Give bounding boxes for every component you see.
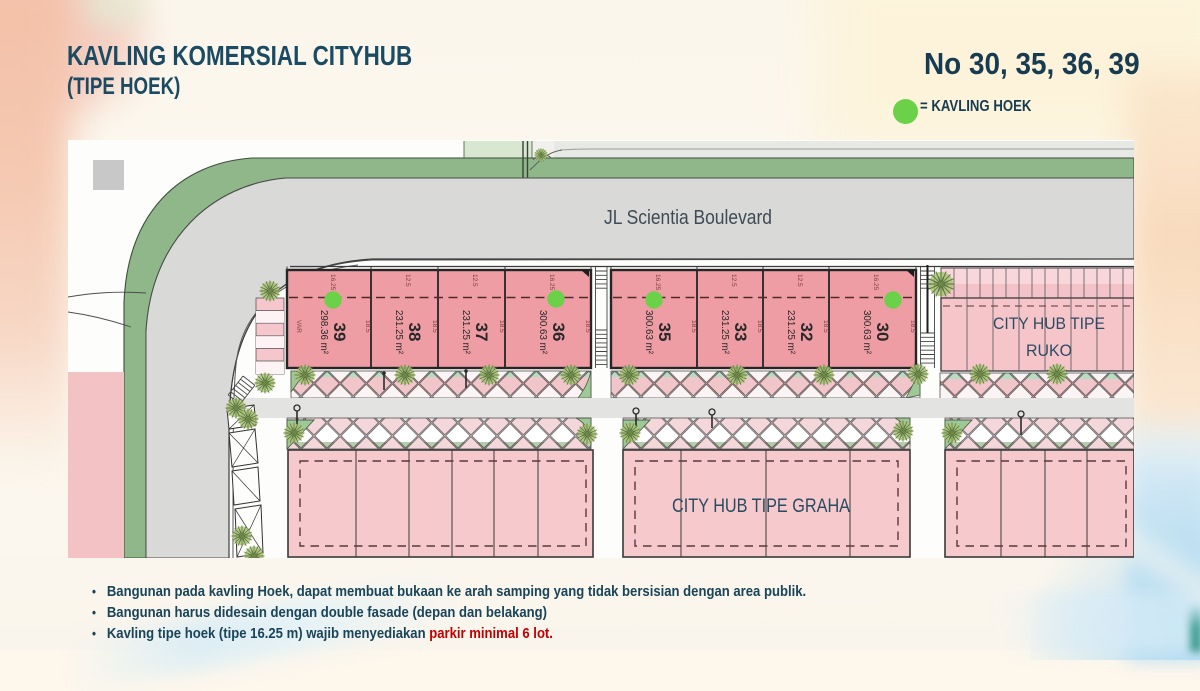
svg-text:JL Scientia Boulevard: JL Scientia Boulevard [604, 206, 772, 229]
svg-text:12.5: 12.5 [404, 274, 411, 287]
svg-text:18.5: 18.5 [498, 320, 505, 333]
svg-text:38: 38 [405, 323, 424, 342]
svg-text:231.25 m²: 231.25 m² [460, 310, 471, 355]
svg-text:CITY HUB TIPE GRAHA: CITY HUB TIPE GRAHA [672, 496, 850, 517]
svg-text:12.5: 12.5 [796, 274, 803, 287]
svg-text:36: 36 [549, 323, 568, 342]
svg-text:300.63 m²: 300.63 m² [643, 310, 654, 355]
svg-text:16.25: 16.25 [872, 274, 879, 291]
svg-text:18.5: 18.5 [909, 320, 916, 333]
svg-text:16.25: 16.25 [548, 274, 555, 291]
svg-text:RUKO: RUKO [1026, 342, 1072, 360]
svg-text:18.5: 18.5 [584, 320, 591, 333]
svg-text:12.5: 12.5 [471, 274, 478, 287]
svg-text:37: 37 [472, 323, 491, 342]
svg-text:300.63 m²: 300.63 m² [537, 310, 548, 355]
svg-text:35: 35 [655, 323, 674, 342]
svg-text:VAR: VAR [295, 320, 302, 333]
svg-text:18.5: 18.5 [690, 320, 697, 333]
svg-text:33: 33 [731, 323, 750, 342]
svg-text:16.25: 16.25 [654, 274, 661, 291]
svg-text:39: 39 [330, 323, 349, 342]
svg-text:CITY HUB TIPE: CITY HUB TIPE [993, 315, 1105, 333]
svg-text:231.25 m²: 231.25 m² [785, 310, 796, 355]
svg-text:30: 30 [873, 323, 892, 342]
svg-text:32: 32 [797, 323, 816, 342]
svg-text:300.63 m²: 300.63 m² [861, 310, 872, 355]
svg-text:16.25: 16.25 [329, 274, 336, 291]
svg-text:231.25 m²: 231.25 m² [393, 310, 404, 355]
svg-text:18.5: 18.5 [364, 320, 371, 333]
svg-text:18.5: 18.5 [822, 320, 829, 333]
svg-text:18.5: 18.5 [431, 320, 438, 333]
svg-text:18.5: 18.5 [756, 320, 763, 333]
svg-text:231.25 m²: 231.25 m² [719, 310, 730, 355]
svg-text:298.36 m²: 298.36 m² [318, 310, 329, 355]
svg-text:12.5: 12.5 [730, 274, 737, 287]
